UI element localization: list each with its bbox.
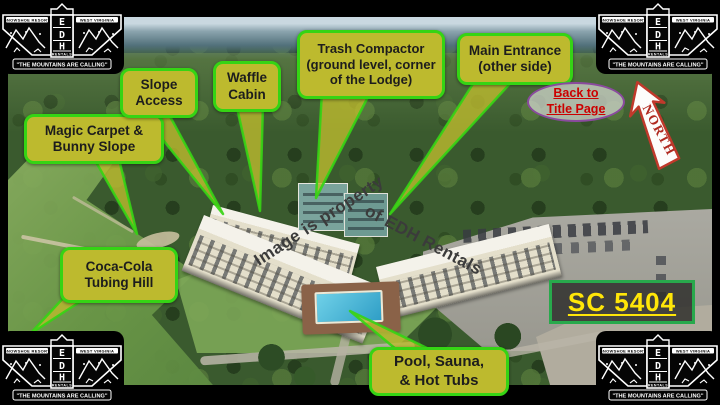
swimming-pool <box>314 290 383 324</box>
back-to-title-link[interactable]: Back to Title Page <box>527 82 625 122</box>
logo-tagline: "THE MOUNTAINS ARE CALLING" <box>16 393 107 399</box>
logo-resort-name: SNOWSHOE RESORT <box>4 348 50 353</box>
corner-logo: SNOWSHOE RESORT WEST VIRGINIA E D H REN <box>0 0 124 74</box>
logo-tagline: "THE MOUNTAINS ARE CALLING" <box>16 62 107 68</box>
logo-letter-e: E <box>59 17 65 28</box>
corner-logo: SNOWSHOE RESORT WEST VIRGINIA E D H REN <box>0 331 124 405</box>
logo-state-name: WEST VIRGINIA <box>676 348 710 353</box>
logo-letter-h: H <box>59 373 65 384</box>
logo-letter-e: E <box>655 348 661 359</box>
logo-state-name: WEST VIRGINIA <box>676 17 710 22</box>
corner-logo: SNOWSHOE RESORT WEST VIRGINIA E D H REN <box>596 0 720 74</box>
logo-letter-h: H <box>655 373 661 384</box>
callout-pool: Pool, Sauna, & Hot Tubs <box>369 347 509 396</box>
logo-resort-name: SNOWSHOE RESORT <box>600 17 646 22</box>
logo-letter-h: H <box>59 42 65 53</box>
logo-letter-d: D <box>655 361 661 372</box>
logo-tower-roof <box>647 4 669 15</box>
logo-letter-e: E <box>655 17 661 28</box>
logo-tagline: "THE MOUNTAINS ARE CALLING" <box>612 393 703 399</box>
logo-letter-h: H <box>655 42 661 53</box>
logo-rentals-label: RENTALS <box>648 53 668 57</box>
logo-tower-roof <box>51 335 73 346</box>
logo-letter-d: D <box>59 30 65 41</box>
logo-letter-d: D <box>59 361 65 372</box>
logo-tower-roof <box>51 4 73 15</box>
logo-resort-name: SNOWSHOE RESORT <box>4 17 50 22</box>
logo-letter-e: E <box>59 348 65 359</box>
callout-waffle-cabin: Waffle Cabin <box>213 61 281 112</box>
logo-letter-d: D <box>655 30 661 41</box>
callout-trash-compactor: Trash Compactor (ground level, corner of… <box>297 30 445 99</box>
logo-rentals-label: RENTALS <box>52 384 72 388</box>
callout-main-entrance: Main Entrance (other side) <box>457 33 573 85</box>
logo-resort-name: SNOWSHOE RESORT <box>600 348 646 353</box>
logo-tagline: "THE MOUNTAINS ARE CALLING" <box>612 62 703 68</box>
tree-clump <box>240 327 330 385</box>
logo-tower-roof <box>647 335 669 346</box>
logo-rentals-label: RENTALS <box>648 384 668 388</box>
logo-state-name: WEST VIRGINIA <box>80 17 114 22</box>
callout-tubing-hill: Coca-Cola Tubing Hill <box>60 247 178 303</box>
callout-slope-access: Slope Access <box>120 68 198 118</box>
slide: Image is property of EDH Rentals Magic C… <box>0 0 720 405</box>
callout-magic-carpet: Magic Carpet & Bunny Slope <box>24 114 164 164</box>
corner-logo: SNOWSHOE RESORT WEST VIRGINIA E D H REN <box>596 331 720 405</box>
unit-number-badge[interactable]: SC 5404 <box>549 280 695 324</box>
logo-state-name: WEST VIRGINIA <box>80 348 114 353</box>
logo-rentals-label: RENTALS <box>52 53 72 57</box>
